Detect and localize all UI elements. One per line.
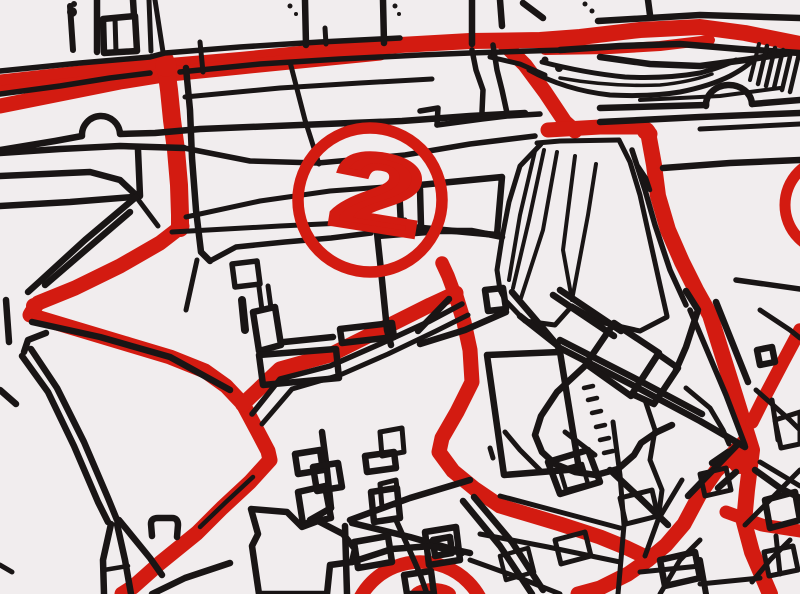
svg-text:2: 2 bbox=[324, 128, 431, 259]
